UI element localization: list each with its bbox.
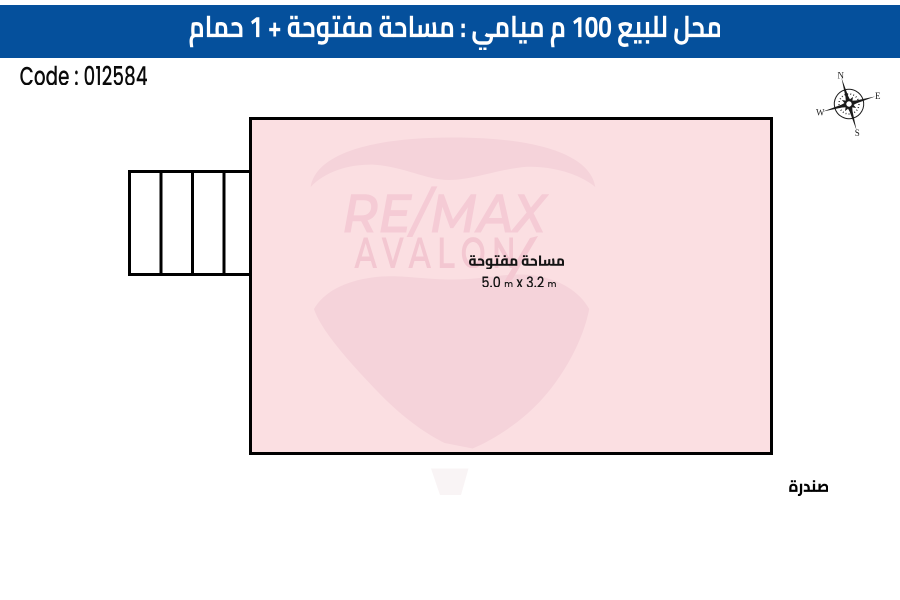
svg-text:N: N bbox=[837, 71, 844, 81]
svg-text:E: E bbox=[875, 91, 881, 101]
svg-text:S: S bbox=[855, 128, 860, 138]
svg-text:W: W bbox=[816, 108, 825, 118]
